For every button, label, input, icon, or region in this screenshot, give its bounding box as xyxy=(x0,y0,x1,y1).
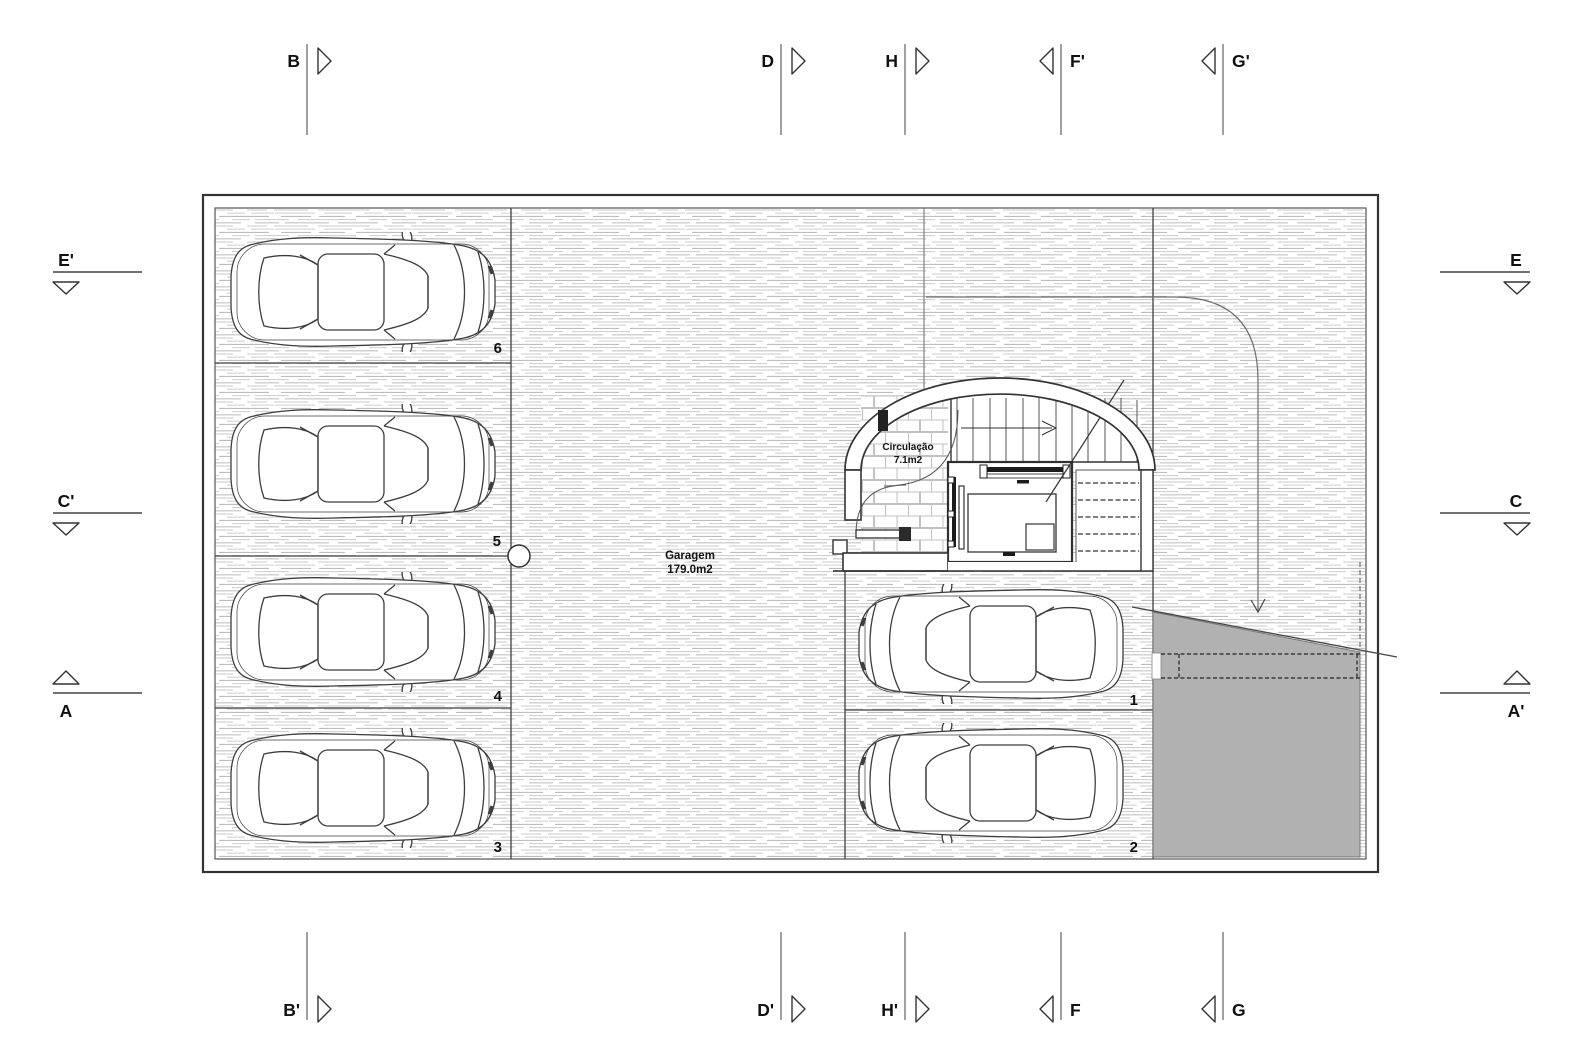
marker-label: B xyxy=(287,51,300,71)
section-arrow-icon xyxy=(1040,48,1053,74)
circulation-label: Circulação xyxy=(882,442,933,453)
section-marker-f: F xyxy=(1040,932,1081,1022)
car-space-1 xyxy=(859,579,1123,709)
stair-core: Circulação 7.1m2 xyxy=(833,378,1155,571)
marker-label: H xyxy=(885,51,898,71)
section-arrow-icon xyxy=(1504,671,1530,684)
marker-label: F' xyxy=(1070,51,1085,71)
section-arrow-icon xyxy=(1504,282,1530,294)
section-marker-e-prime: E' xyxy=(53,250,142,294)
section-marker-a: A xyxy=(53,671,142,721)
marker-label: D xyxy=(761,51,774,71)
marker-label: E' xyxy=(58,250,74,270)
car-space-4 xyxy=(231,567,495,697)
space-number: 4 xyxy=(494,688,503,705)
section-marker-b-prime: B' xyxy=(283,932,331,1022)
marker-label: H' xyxy=(881,1000,898,1020)
column xyxy=(508,545,530,567)
section-arrow-icon xyxy=(1202,996,1215,1022)
space-number: 6 xyxy=(494,340,502,357)
section-arrow-icon xyxy=(53,671,79,684)
marker-label: E xyxy=(1510,250,1522,270)
garage-label: Garagem xyxy=(665,550,715,562)
section-marker-c-prime: C' xyxy=(53,491,142,535)
space-number: 1 xyxy=(1130,692,1138,709)
marker-label: C' xyxy=(58,491,75,511)
section-arrow-icon xyxy=(318,48,331,74)
marker-label: D' xyxy=(757,1000,774,1020)
section-arrow-icon xyxy=(318,996,331,1022)
marker-label: A' xyxy=(1508,701,1525,721)
section-arrow-icon xyxy=(792,48,805,74)
section-marker-d: D xyxy=(761,44,805,135)
marker-label: G xyxy=(1232,1000,1246,1020)
section-arrow-icon xyxy=(916,48,929,74)
marker-label: F xyxy=(1070,1000,1081,1020)
floor-plan-canvas: B D H F' G' B' xyxy=(0,0,1572,1058)
section-marker-e: E xyxy=(1440,250,1530,294)
section-arrow-icon xyxy=(53,282,79,294)
core-wall-step xyxy=(833,540,847,554)
elevator xyxy=(948,462,1072,562)
circulation-area: 7.1m2 xyxy=(894,455,923,466)
section-arrow-icon xyxy=(1202,48,1215,74)
section-marker-h: H xyxy=(885,44,929,135)
marker-label: B' xyxy=(283,1000,300,1020)
space-number: 2 xyxy=(1130,839,1138,856)
section-marker-h-prime: H' xyxy=(881,932,929,1022)
section-marker-g: G xyxy=(1202,932,1246,1022)
core-left-wall xyxy=(845,470,861,520)
garage-area: 179.0m2 xyxy=(667,564,712,576)
marker-label: C xyxy=(1510,491,1523,511)
section-arrow-icon xyxy=(1504,523,1530,535)
section-arrow-icon xyxy=(53,523,79,535)
core-bottom-wall xyxy=(843,553,948,571)
car-space-6 xyxy=(231,227,495,357)
section-marker-f-prime: F' xyxy=(1040,44,1085,135)
car-space-5 xyxy=(231,399,495,529)
section-marker-b: B xyxy=(287,44,331,135)
section-arrow-icon xyxy=(916,996,929,1022)
marker-label: G' xyxy=(1232,51,1250,71)
space-number: 3 xyxy=(494,839,502,856)
garage-plan: Circulação 7.1m2 xyxy=(203,195,1397,872)
elevator-door xyxy=(986,467,1064,472)
space-number: 5 xyxy=(493,533,501,550)
section-marker-g-prime: G' xyxy=(1202,44,1250,135)
section-arrow-icon xyxy=(1040,996,1053,1022)
core-right-wall xyxy=(1141,470,1153,571)
section-arrow-icon xyxy=(792,996,805,1022)
entry-ramp-strip xyxy=(1076,470,1141,571)
section-marker-d-prime: D' xyxy=(757,932,805,1022)
car-space-2 xyxy=(859,718,1123,848)
section-marker-a-prime: A' xyxy=(1440,671,1530,721)
section-marker-c: C xyxy=(1440,491,1530,535)
drawing-sheet: B D H F' G' B' xyxy=(0,0,1572,1058)
car-space-3 xyxy=(231,723,495,853)
marker-label: A xyxy=(60,701,73,721)
